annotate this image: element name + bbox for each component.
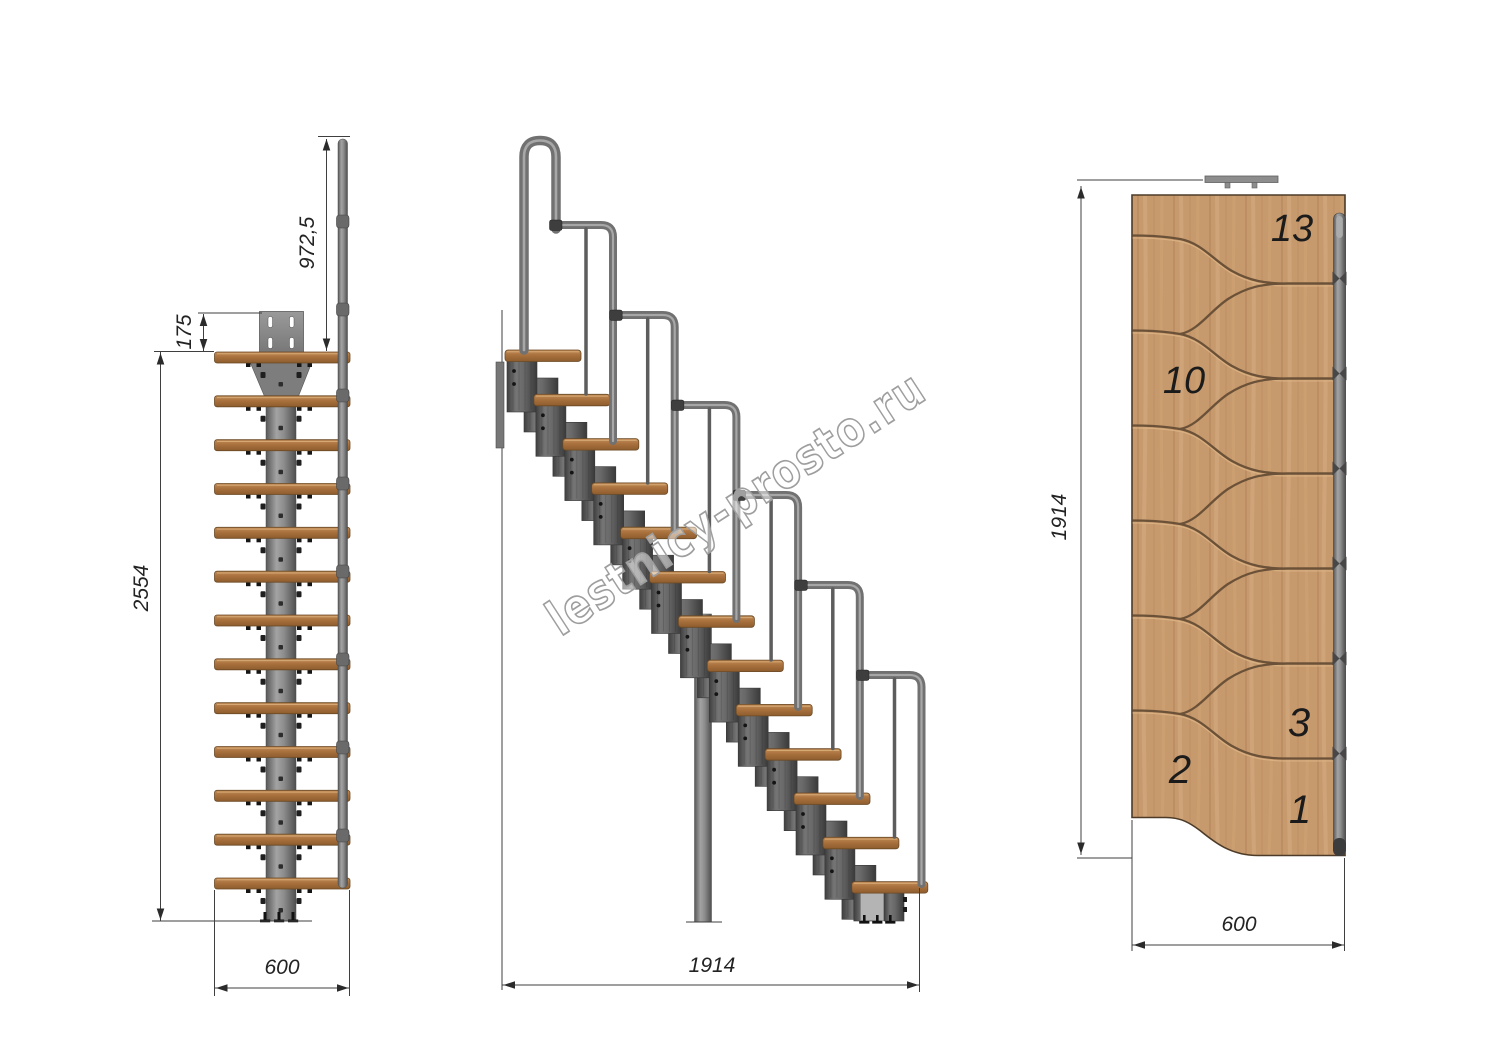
step-tread bbox=[852, 882, 928, 894]
step-tread bbox=[505, 350, 581, 362]
plan-view: 13 10 3 2 1 1914 bbox=[1048, 176, 1347, 951]
rail-clamp bbox=[550, 220, 563, 231]
step-tread bbox=[823, 837, 899, 849]
staircase-technical-drawing: 972,5 175 2554 600 bbox=[0, 0, 1500, 1061]
handrail-loop bbox=[524, 141, 556, 351]
rail-clamp bbox=[610, 310, 623, 321]
rail-clamp bbox=[857, 670, 870, 681]
dimension-plate-offset: 175 bbox=[173, 313, 262, 351]
wall-mounting-plate bbox=[260, 312, 304, 353]
dim-plan-length: 1914 bbox=[1048, 494, 1071, 541]
step-tread bbox=[765, 749, 841, 761]
plan-step-label-3: 3 bbox=[1288, 701, 1310, 745]
plan-step-label-2: 2 bbox=[1168, 748, 1191, 792]
dim-handrail-height: 972,5 bbox=[296, 216, 319, 269]
rail-end-cap bbox=[1333, 838, 1346, 856]
dim-plan-width: 600 bbox=[1221, 913, 1256, 936]
rail-clamp bbox=[795, 580, 808, 591]
step-tread bbox=[678, 616, 754, 628]
plan-step-label-10: 10 bbox=[1163, 360, 1205, 402]
plan-handrail bbox=[1333, 213, 1347, 856]
plan-wall-plate bbox=[1205, 176, 1278, 188]
side-view: 1914 bbox=[496, 141, 928, 993]
drawing-svg: 972,5 175 2554 600 bbox=[0, 0, 1500, 1061]
dim-front-width: 600 bbox=[264, 956, 299, 979]
dim-plate-offset: 175 bbox=[173, 314, 196, 349]
plan-step-label-13: 13 bbox=[1271, 208, 1313, 250]
step-tread bbox=[592, 483, 668, 495]
dim-total-height: 2554 bbox=[130, 565, 153, 613]
floor-module bbox=[854, 893, 907, 924]
wall-bracket bbox=[496, 362, 504, 448]
step-tread bbox=[534, 394, 610, 406]
handrail-post-front bbox=[337, 139, 350, 888]
step-tread bbox=[707, 660, 783, 672]
rail-clamp bbox=[671, 400, 684, 411]
front-view: 972,5 175 2554 600 bbox=[130, 137, 350, 997]
handrail-rails bbox=[550, 220, 922, 884]
column-taper-bracket bbox=[250, 362, 312, 400]
dim-side-length: 1914 bbox=[689, 954, 736, 977]
step-tread bbox=[563, 439, 639, 451]
plan-step-label-1: 1 bbox=[1289, 788, 1311, 832]
